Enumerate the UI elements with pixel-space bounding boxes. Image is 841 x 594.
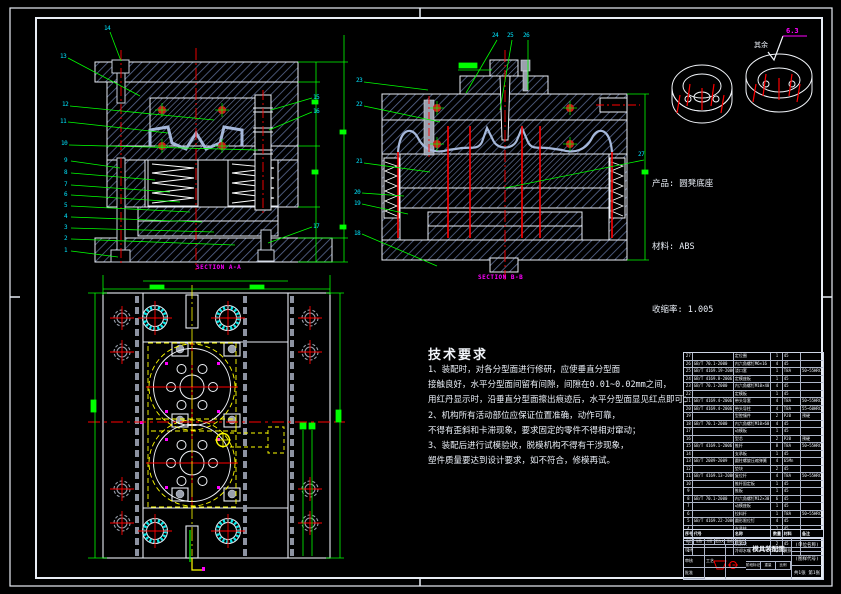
balloon-15: 15	[313, 95, 319, 101]
parts-list-row: 20GB/T 4169.4-2006 带头导柱4 T8A55~60HRC	[684, 406, 823, 414]
balloon-19: 19	[354, 201, 360, 207]
balloon-12: 12	[62, 102, 68, 108]
title-block-signatures: 标记 处数 分区 更改文件号 签名 年月日 设计 审核 工艺 批准	[684, 538, 746, 579]
product-shrinkage-line: 收缩率: 1.005	[652, 300, 713, 321]
parts-list-row: 7 动模座板1 45	[684, 503, 823, 511]
drawing-sheet: 产品: 圆凳底座 材料: ABS 收缩率: 1.005 其余 6.3 SECTI…	[0, 0, 841, 594]
title-block-right: (单位名称) (图样代号) 共1张 第1张	[792, 538, 822, 579]
roughness-value: 6.3	[786, 27, 799, 35]
balloon-20: 20	[354, 190, 360, 196]
balloon-11: 11	[60, 119, 66, 125]
check-label: 审核	[684, 556, 705, 567]
balloon-14: 14	[104, 26, 110, 32]
parts-list-row: 15GB/T 4169.1-2006 推杆8 T8A50~55HRC	[684, 443, 823, 451]
balloon-9: 9	[64, 158, 67, 164]
parts-list-row: 19 型腔镶件2 P20预硬	[684, 413, 823, 421]
section-label-a-a: SECTION A-A	[196, 264, 241, 271]
product-material-line: 材料: ABS	[652, 237, 713, 258]
tech-req-line: 用红丹显示时，沿垂直分型面擦出痕迹后，水平分型面显见红点即可：	[428, 393, 698, 408]
balloon-22: 22	[356, 102, 362, 108]
drawing-code: (图样代号)	[792, 552, 822, 566]
technical-requirements: 技术要求 1、装配时，对各分型面进行修研，应使垂直分型面 接触良好，水平分型面间…	[428, 344, 698, 469]
tech-req-line: 2、机构所有活动部位应保证位置准确，动作可靠，	[428, 409, 698, 424]
surface-roughness-symbol	[768, 36, 807, 60]
balloon-2: 2	[64, 236, 67, 242]
dimensions-left-view	[298, 35, 348, 262]
approve-label: 批准	[684, 568, 705, 579]
parts-list-row: 5GB/T 4169.22-2006 圆形限位钉4 45	[684, 518, 823, 526]
tech-req-line: 不得有歪斜和卡滞现象，要求固定的零件不得相对窜动；	[428, 424, 698, 439]
balloon-13: 13	[60, 54, 66, 60]
parts-list-row: 14 支承板1 45	[684, 451, 823, 459]
product-name-line: 产品: 圆凳底座	[652, 174, 713, 195]
org-name: (单位名称)	[792, 538, 822, 552]
design-label: 设计	[684, 545, 705, 556]
parts-list-row: 13GB/T 2089-2009 圆柱螺旋压缩弹簧4 65Mn	[684, 458, 823, 466]
balloon-1: 1	[64, 248, 67, 254]
parts-list-row: 22 定模板1 45	[684, 391, 823, 399]
balloon-8: 8	[64, 170, 67, 176]
balloon-17: 17	[313, 224, 319, 230]
parts-list-row: 24GB/T 4169.8-2006 定模座板1 45	[684, 376, 823, 384]
balloon-7: 7	[64, 182, 67, 188]
balloon-23: 23	[356, 78, 362, 84]
title-block-name-area: 模具装配图 阶段标记 重量 比例	[746, 538, 792, 579]
drawing-title: 模具装配图	[746, 538, 791, 562]
balloon-21: 21	[356, 159, 362, 165]
parts-list-row: 26GB/T 70.1-2000 内六角螺钉M6×164 45	[684, 361, 823, 369]
isometric-part-views	[672, 54, 812, 123]
product-info: 产品: 圆凳底座 材料: ABS 收缩率: 1.005	[652, 132, 713, 342]
balloon-10: 10	[61, 141, 67, 147]
balloon-25: 25	[507, 33, 513, 39]
balloon-16: 16	[313, 109, 319, 115]
parts-list-row: 6 拉料杆1 T8A50~55HRC	[684, 511, 823, 519]
process-label: 工艺	[705, 556, 726, 567]
parts-list-row: 18GB/T 70.1-2000 内六角螺钉M10×604 45	[684, 421, 823, 429]
parts-list-row: 27 定位圈1 45	[684, 353, 823, 361]
tech-req-line: 3、装配后进行试模验收，脱模机构不得有干涉现象，	[428, 439, 698, 454]
balloon-6: 6	[64, 192, 67, 198]
balloon-5: 5	[64, 203, 67, 209]
parts-list-row: 25GB/T 4169.19-2006 浇口套1 T8A50~55HRC	[684, 368, 823, 376]
parts-list-row: 12 垫块2 45	[684, 466, 823, 474]
plan-view	[88, 275, 345, 571]
parts-list-row: 17 动模板1 45	[684, 428, 823, 436]
parts-list-row: 8GB/T 70.1-2000 内六角螺钉M12×306 45	[684, 496, 823, 504]
balloon-3: 3	[64, 225, 67, 231]
parts-list-row: 11GB/T 4169.13-2006 复位杆4 T8A50~55HRC	[684, 473, 823, 481]
balloon-24: 24	[492, 33, 498, 39]
parts-list-table: 27 定位圈1 45 26GB/T 70.1-2000 内六角螺钉M6×164 …	[683, 352, 824, 556]
tech-req-line: 塑件质量要达到设计要求，如不符合，修模再试。	[428, 454, 698, 469]
tech-req-title: 技术要求	[428, 344, 698, 363]
section-view-b-b	[382, 50, 649, 280]
parts-list-row: 21GB/T 4169.4-2006 带头导套4 T8A50~55HRC	[684, 398, 823, 406]
balloon-4: 4	[64, 214, 67, 220]
balloon-26: 26	[523, 33, 529, 39]
section-view-a-a	[95, 35, 348, 270]
tech-req-line: 1、装配时，对各分型面进行修研，应使垂直分型面	[428, 363, 698, 378]
roughness-rest-label: 其余	[754, 40, 768, 50]
parts-list-row: 23GB/T 70.1-2000 内六角螺钉M10×404 45	[684, 383, 823, 391]
balloon-27: 27	[638, 152, 644, 158]
section-label-b-b: SECTION B-B	[478, 274, 523, 281]
parts-list-row: 10 推杆固定板1 45	[684, 481, 823, 489]
parts-list-row: 16 型芯2 P20预硬	[684, 436, 823, 444]
sheet-count: 共1张 第1张	[792, 566, 822, 579]
tech-req-line: 接触良好，水平分型面间留有间隙，间隙在0.01~0.02mm之间，	[428, 378, 698, 393]
balloon-18: 18	[354, 231, 360, 237]
parts-list-row: 9 推板1 45	[684, 488, 823, 496]
title-block: 标记 处数 分区 更改文件号 签名 年月日 设计 审核 工艺 批准 模具装配图 …	[683, 537, 824, 580]
